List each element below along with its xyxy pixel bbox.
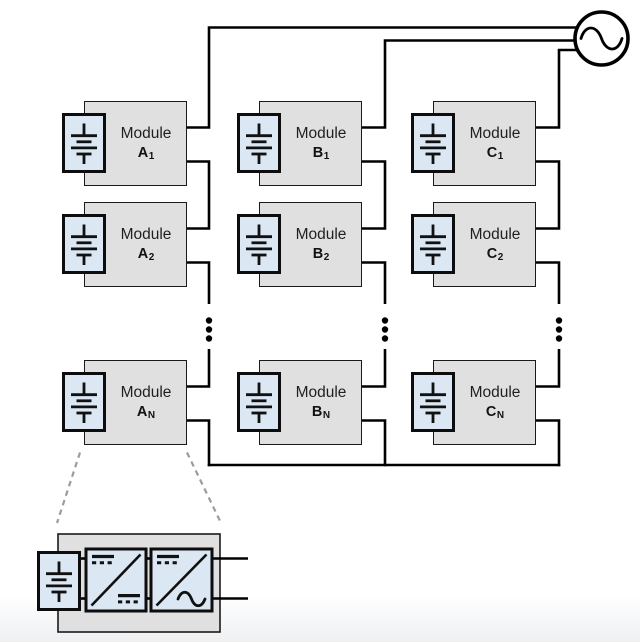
module-name: C2 xyxy=(487,245,504,265)
circuit-diagram: Module A1 Module A2 Module AN Module B1 … xyxy=(0,0,640,642)
module-name: AN xyxy=(137,403,155,423)
module-label: Module BN xyxy=(281,361,361,444)
module-word: Module xyxy=(296,383,347,402)
dc-ac-inverter-icon xyxy=(151,549,212,611)
wire-dots-to-bn xyxy=(362,349,385,387)
module-group: C xyxy=(486,404,496,420)
module-a1: Module A1 xyxy=(84,101,187,186)
module-word: Module xyxy=(121,225,172,244)
module-word: Module xyxy=(296,124,347,143)
wire-b1-to-b2 xyxy=(362,162,385,229)
battery-icon xyxy=(411,113,455,173)
wire-b2-down xyxy=(362,263,385,305)
column-a-ellipsis-icon xyxy=(206,317,212,341)
wire-source-to-c1 xyxy=(536,50,578,128)
wire-cn-to-bus xyxy=(536,421,559,467)
module-name: A1 xyxy=(138,144,155,164)
battery-icon xyxy=(237,113,281,173)
battery-icon xyxy=(39,553,80,610)
leader-line-left xyxy=(57,453,80,524)
module-name: C1 xyxy=(487,144,504,164)
module-an: Module AN xyxy=(84,360,187,445)
module-group: C xyxy=(487,145,497,161)
module-name: CN xyxy=(486,403,504,423)
battery-icon xyxy=(237,214,281,274)
module-index: N xyxy=(323,410,330,421)
module-a2: Module A2 xyxy=(84,202,187,287)
wire-c2-down xyxy=(536,263,559,305)
battery-icon xyxy=(62,113,106,173)
module-group: C xyxy=(487,246,497,262)
module-word: Module xyxy=(121,124,172,143)
module-b2: Module B2 xyxy=(259,202,362,287)
module-word: Module xyxy=(470,225,521,244)
module-label: Module C1 xyxy=(455,102,535,185)
module-c2: Module C2 xyxy=(433,202,536,287)
module-label: Module B2 xyxy=(281,203,361,286)
module-index: N xyxy=(497,410,504,421)
module-name: B2 xyxy=(313,245,330,265)
module-group: A xyxy=(137,404,147,420)
module-word: Module xyxy=(470,124,521,143)
module-group: B xyxy=(313,145,323,161)
column-b-ellipsis-icon xyxy=(382,317,388,341)
column-c-ellipsis-icon xyxy=(556,317,562,341)
module-index: N xyxy=(148,410,155,421)
wire-bn-to-bus xyxy=(362,421,385,467)
ac-source-icon xyxy=(575,12,628,65)
module-index: 2 xyxy=(324,252,330,263)
wire-dots-to-cn xyxy=(536,349,559,387)
module-detail-view xyxy=(39,534,249,632)
module-cn: Module CN xyxy=(433,360,536,445)
module-name: BN xyxy=(312,403,330,423)
module-index: 1 xyxy=(498,151,504,162)
module-label: Module B1 xyxy=(281,102,361,185)
module-word: Module xyxy=(470,383,521,402)
battery-icon xyxy=(237,372,281,432)
battery-icon xyxy=(411,214,455,274)
module-group: B xyxy=(312,404,322,420)
wire-an-to-bus xyxy=(187,421,209,467)
dc-dc-converter-icon xyxy=(86,549,146,611)
leader-line-right xyxy=(187,453,221,524)
detail-leader-lines xyxy=(57,453,221,524)
wiring-layer xyxy=(0,0,640,642)
wire-dots-to-an xyxy=(187,349,209,387)
wire-a1-to-a2 xyxy=(187,162,209,229)
battery-icon xyxy=(411,372,455,432)
module-group: A xyxy=(138,246,148,262)
battery-icon xyxy=(62,372,106,432)
module-group: B xyxy=(313,246,323,262)
module-c1: Module C1 xyxy=(433,101,536,186)
module-index: 2 xyxy=(498,252,504,263)
module-word: Module xyxy=(121,383,172,402)
module-label: Module CN xyxy=(455,361,535,444)
battery-icon xyxy=(62,214,106,274)
module-word: Module xyxy=(296,225,347,244)
module-group: A xyxy=(138,145,148,161)
module-label: Module A2 xyxy=(106,203,186,286)
wire-c1-to-c2 xyxy=(536,162,559,229)
module-name: B1 xyxy=(313,144,330,164)
module-bn: Module BN xyxy=(259,360,362,445)
wire-a2-down xyxy=(187,263,209,305)
column-c-wiring xyxy=(536,50,578,466)
module-label: Module C2 xyxy=(455,203,535,286)
module-index: 1 xyxy=(149,151,155,162)
module-label: Module A1 xyxy=(106,102,186,185)
module-name: A2 xyxy=(138,245,155,265)
module-b1: Module B1 xyxy=(259,101,362,186)
module-label: Module AN xyxy=(106,361,186,444)
module-index: 1 xyxy=(324,151,330,162)
module-index: 2 xyxy=(149,252,155,263)
